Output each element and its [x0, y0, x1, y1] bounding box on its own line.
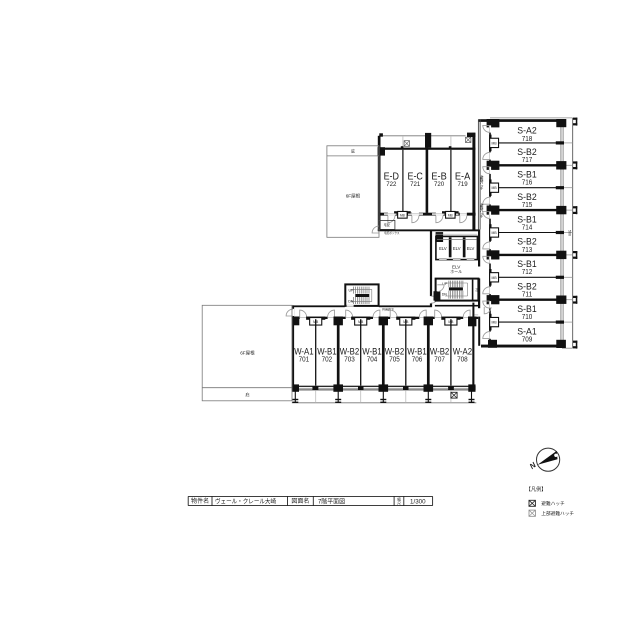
svg-text:7階平面図: 7階平面図 [318, 497, 345, 505]
svg-text:719: 719 [458, 181, 468, 188]
svg-text:711: 711 [522, 292, 533, 299]
svg-text:500: 500 [568, 230, 572, 236]
svg-text:S-A2: S-A2 [517, 125, 536, 136]
svg-text:W-B1: W-B1 [407, 346, 426, 357]
svg-text:S-B2: S-B2 [517, 146, 536, 157]
svg-text:上部避難ハッチ: 上部避難ハッチ [541, 510, 574, 517]
svg-text:6F屋根: 6F屋根 [346, 192, 361, 199]
svg-text:716: 716 [522, 180, 533, 187]
svg-text:S-B2: S-B2 [517, 281, 536, 292]
svg-text:DN: DN [442, 292, 448, 296]
svg-text:705: 705 [389, 357, 400, 364]
svg-text:6F屋根: 6F屋根 [240, 349, 255, 356]
svg-text:MB: MB [492, 276, 498, 280]
svg-text:S-B2: S-B2 [517, 191, 536, 202]
svg-text:702: 702 [322, 357, 333, 364]
svg-text:W-B2: W-B2 [430, 346, 449, 357]
svg-text:宅配ボックス: 宅配ボックス [384, 231, 400, 235]
svg-text:703: 703 [344, 357, 355, 364]
svg-text:図面名: 図面名 [291, 497, 309, 505]
svg-text:720: 720 [434, 181, 444, 188]
svg-text:MB: MB [492, 321, 498, 325]
svg-text:721: 721 [410, 181, 420, 188]
svg-text:共用廊下: 共用廊下 [382, 307, 394, 312]
svg-text:MB: MB [492, 141, 498, 145]
svg-text:718: 718 [522, 136, 533, 143]
svg-text:DN: DN [348, 300, 354, 304]
svg-text:S-B1: S-B1 [517, 169, 536, 180]
svg-text:ELV: ELV [453, 246, 461, 251]
svg-text:MB: MB [492, 231, 498, 235]
svg-text:710: 710 [522, 314, 533, 321]
svg-text:ELV: ELV [467, 246, 475, 251]
svg-text:避難ハッチ: 避難ハッチ [479, 174, 483, 190]
svg-text:S-B1: S-B1 [517, 258, 536, 269]
svg-text:ヴェール・クレール大崎: ヴェール・クレール大崎 [215, 497, 276, 505]
svg-text:庇: 庇 [246, 391, 250, 397]
svg-text:S-B2: S-B2 [517, 236, 536, 247]
svg-text:W-A2: W-A2 [453, 346, 472, 357]
svg-text:避難ハッチ: 避難ハッチ [541, 500, 565, 507]
svg-text:S-B1: S-B1 [517, 303, 536, 314]
svg-text:【凡例】: 【凡例】 [526, 485, 547, 493]
svg-text:W-A1: W-A1 [294, 346, 313, 357]
svg-text:701: 701 [299, 357, 310, 364]
svg-text:W-B1: W-B1 [362, 346, 381, 357]
svg-text:715: 715 [522, 202, 533, 209]
svg-text:S-A1: S-A1 [517, 325, 536, 336]
svg-text:MB: MB [400, 214, 405, 218]
svg-text:宅配: 宅配 [384, 222, 390, 227]
svg-text:尺: 尺 [397, 502, 401, 506]
svg-text:712: 712 [522, 269, 533, 276]
svg-text:704: 704 [367, 357, 378, 364]
svg-text:S-B1: S-B1 [517, 213, 536, 224]
svg-text:714: 714 [522, 224, 533, 231]
svg-text:1/300: 1/300 [410, 498, 426, 505]
svg-text:ホール: ホール [450, 269, 462, 274]
svg-text:708: 708 [457, 357, 468, 364]
svg-text:PS: PS [475, 288, 479, 292]
svg-text:709: 709 [522, 336, 533, 343]
svg-text:W-B2: W-B2 [385, 346, 404, 357]
svg-text:706: 706 [412, 357, 423, 364]
svg-text:707: 707 [434, 357, 445, 364]
svg-text:ELV: ELV [439, 246, 447, 251]
svg-text:MB: MB [492, 186, 498, 190]
svg-text:722: 722 [386, 181, 396, 188]
svg-text:MB: MB [448, 214, 453, 218]
svg-text:物件名: 物件名 [191, 497, 209, 505]
svg-text:717: 717 [522, 157, 533, 164]
svg-text:713: 713 [522, 247, 533, 254]
svg-text:庇: 庇 [351, 148, 355, 154]
svg-text:W-B2: W-B2 [340, 346, 359, 357]
svg-text:UP: UP [349, 288, 355, 292]
svg-text:W-B1: W-B1 [317, 346, 336, 357]
svg-text:避難ハッチ: 避難ハッチ [479, 202, 483, 218]
